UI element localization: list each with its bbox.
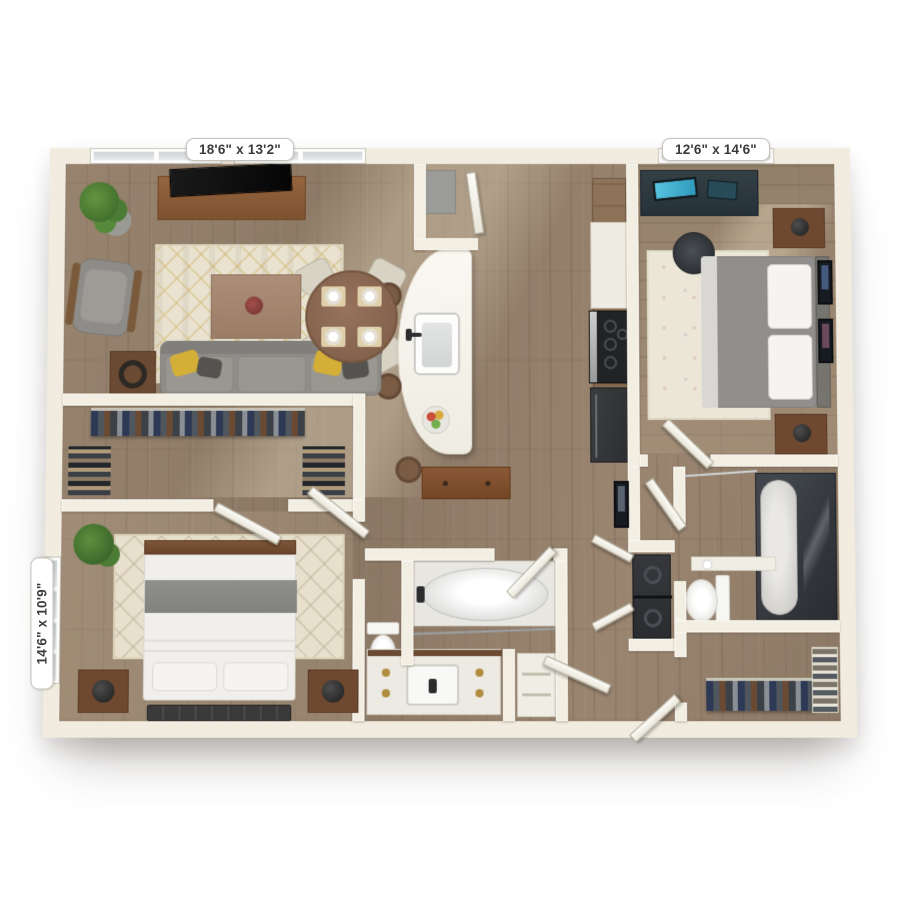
wall — [414, 238, 478, 250]
dining-table — [305, 270, 398, 363]
bedroom2-dimensions-label: 12'6" x 14'6" — [662, 138, 770, 161]
kitchen-counter — [590, 222, 627, 309]
vanity-backsplash — [368, 650, 502, 656]
hall-console-table — [422, 467, 511, 500]
faucet-base — [406, 329, 412, 341]
living-plant-group — [79, 182, 138, 240]
sheet-fold — [701, 256, 718, 407]
wall — [628, 467, 641, 540]
bed-pillow — [152, 662, 217, 691]
bathroom1-vanity — [367, 649, 501, 715]
monitor-icon — [652, 177, 698, 202]
bedroom1-plant-group — [71, 522, 124, 575]
wall-art-frame — [817, 260, 833, 304]
sink-basin — [422, 323, 452, 367]
washer-door-icon — [643, 566, 661, 584]
wall — [674, 620, 840, 632]
burner — [604, 320, 617, 333]
closet2-hanging-clothes — [706, 678, 816, 711]
window-pane — [301, 151, 363, 161]
console-knob — [443, 481, 448, 486]
washer-split — [633, 595, 672, 598]
glass-shower-enclosure — [755, 473, 838, 622]
wall — [640, 454, 648, 466]
ball-lamp-icon — [92, 680, 115, 703]
wall — [626, 164, 640, 467]
wall — [353, 394, 365, 500]
desk — [640, 170, 759, 216]
knob — [475, 689, 483, 697]
wall — [674, 632, 686, 657]
apartment-interior — [59, 164, 841, 721]
bedroom2-dimensions-text: 12'6" x 14'6" — [675, 142, 757, 157]
bar-stool — [395, 456, 421, 482]
wall-art-frame — [818, 319, 834, 363]
stacked-washer-dryer — [632, 554, 671, 638]
shoe-shelf — [68, 446, 111, 495]
shelf-line — [522, 693, 550, 696]
round-mirror-icon — [119, 360, 147, 388]
plant-icon — [79, 182, 119, 222]
closet1-hanging-clothes — [91, 408, 305, 436]
window-pane — [93, 151, 155, 161]
console-knob — [485, 481, 490, 486]
lamp-icon — [793, 424, 811, 442]
duvet-fold — [144, 640, 296, 642]
gray-blanket — [145, 580, 297, 613]
bedroom1-bed — [143, 554, 296, 700]
faucet-icon — [429, 679, 437, 693]
shelf-line — [522, 673, 550, 676]
tub-faucet-icon — [417, 586, 425, 602]
plate — [362, 288, 378, 304]
plate — [325, 329, 341, 345]
knob — [475, 669, 483, 677]
bathroom2-ledge — [691, 557, 776, 571]
wall — [674, 581, 686, 620]
range-cooktop — [589, 311, 630, 384]
armchair-cushion — [79, 268, 128, 325]
toilet-bowl — [685, 579, 718, 622]
refrigerator — [590, 387, 629, 462]
glass-sheen — [803, 484, 831, 613]
wall — [555, 561, 568, 722]
fridge-handle — [595, 395, 597, 458]
foot-bench — [147, 705, 292, 722]
apartment-plan — [43, 148, 858, 738]
plate — [325, 288, 341, 304]
living-room-dimensions-label: 18'6" x 13'2" — [186, 138, 294, 161]
shower-tub — [760, 480, 798, 615]
wall — [401, 561, 413, 666]
bed-pillow — [767, 264, 812, 328]
island-sink — [414, 313, 460, 376]
wall — [628, 540, 675, 552]
floorplan-image: 18'6" x 13'2" 12'6" x 14'6" 14'6" x 10'9… — [0, 0, 900, 900]
toilet-paper-icon — [702, 560, 712, 570]
plate — [361, 329, 377, 345]
bed-pillow — [768, 335, 813, 400]
range-front — [590, 312, 597, 383]
wall — [710, 454, 837, 466]
bedroom2-bed — [701, 256, 831, 407]
knob — [382, 689, 390, 697]
laptop-icon — [707, 180, 738, 201]
dark-pillow — [196, 356, 223, 379]
lamp-icon — [791, 218, 809, 236]
side-table — [109, 351, 156, 398]
knob — [382, 669, 390, 677]
shoe-shelf — [302, 446, 345, 495]
bed-pillow — [223, 662, 288, 691]
armchair — [63, 256, 143, 343]
ball-lamp-icon — [322, 680, 344, 703]
hall-wall-art-frame — [614, 481, 629, 528]
toilet-tank — [367, 622, 399, 634]
wall — [62, 499, 214, 511]
duvet-fold — [144, 650, 296, 652]
burner — [604, 356, 617, 369]
wall — [365, 548, 495, 560]
wall — [629, 639, 676, 651]
flower-bowl — [245, 296, 263, 314]
fruit-bowl — [422, 406, 450, 434]
dryer-door-icon — [644, 609, 662, 628]
closet2-folded-shelves — [811, 647, 838, 713]
wall — [63, 394, 365, 406]
bedroom1-dimensions-label: 14'6" x 10'9" — [31, 558, 54, 690]
living-room-dimensions-text: 18'6" x 13'2" — [199, 142, 281, 157]
sofa-cushion — [237, 356, 306, 392]
wall — [503, 649, 515, 721]
burner — [604, 338, 617, 351]
bedroom1-dimensions-text: 14'6" x 10'9" — [35, 583, 50, 665]
plant-icon — [73, 524, 114, 565]
pantry-shelf — [424, 170, 456, 214]
